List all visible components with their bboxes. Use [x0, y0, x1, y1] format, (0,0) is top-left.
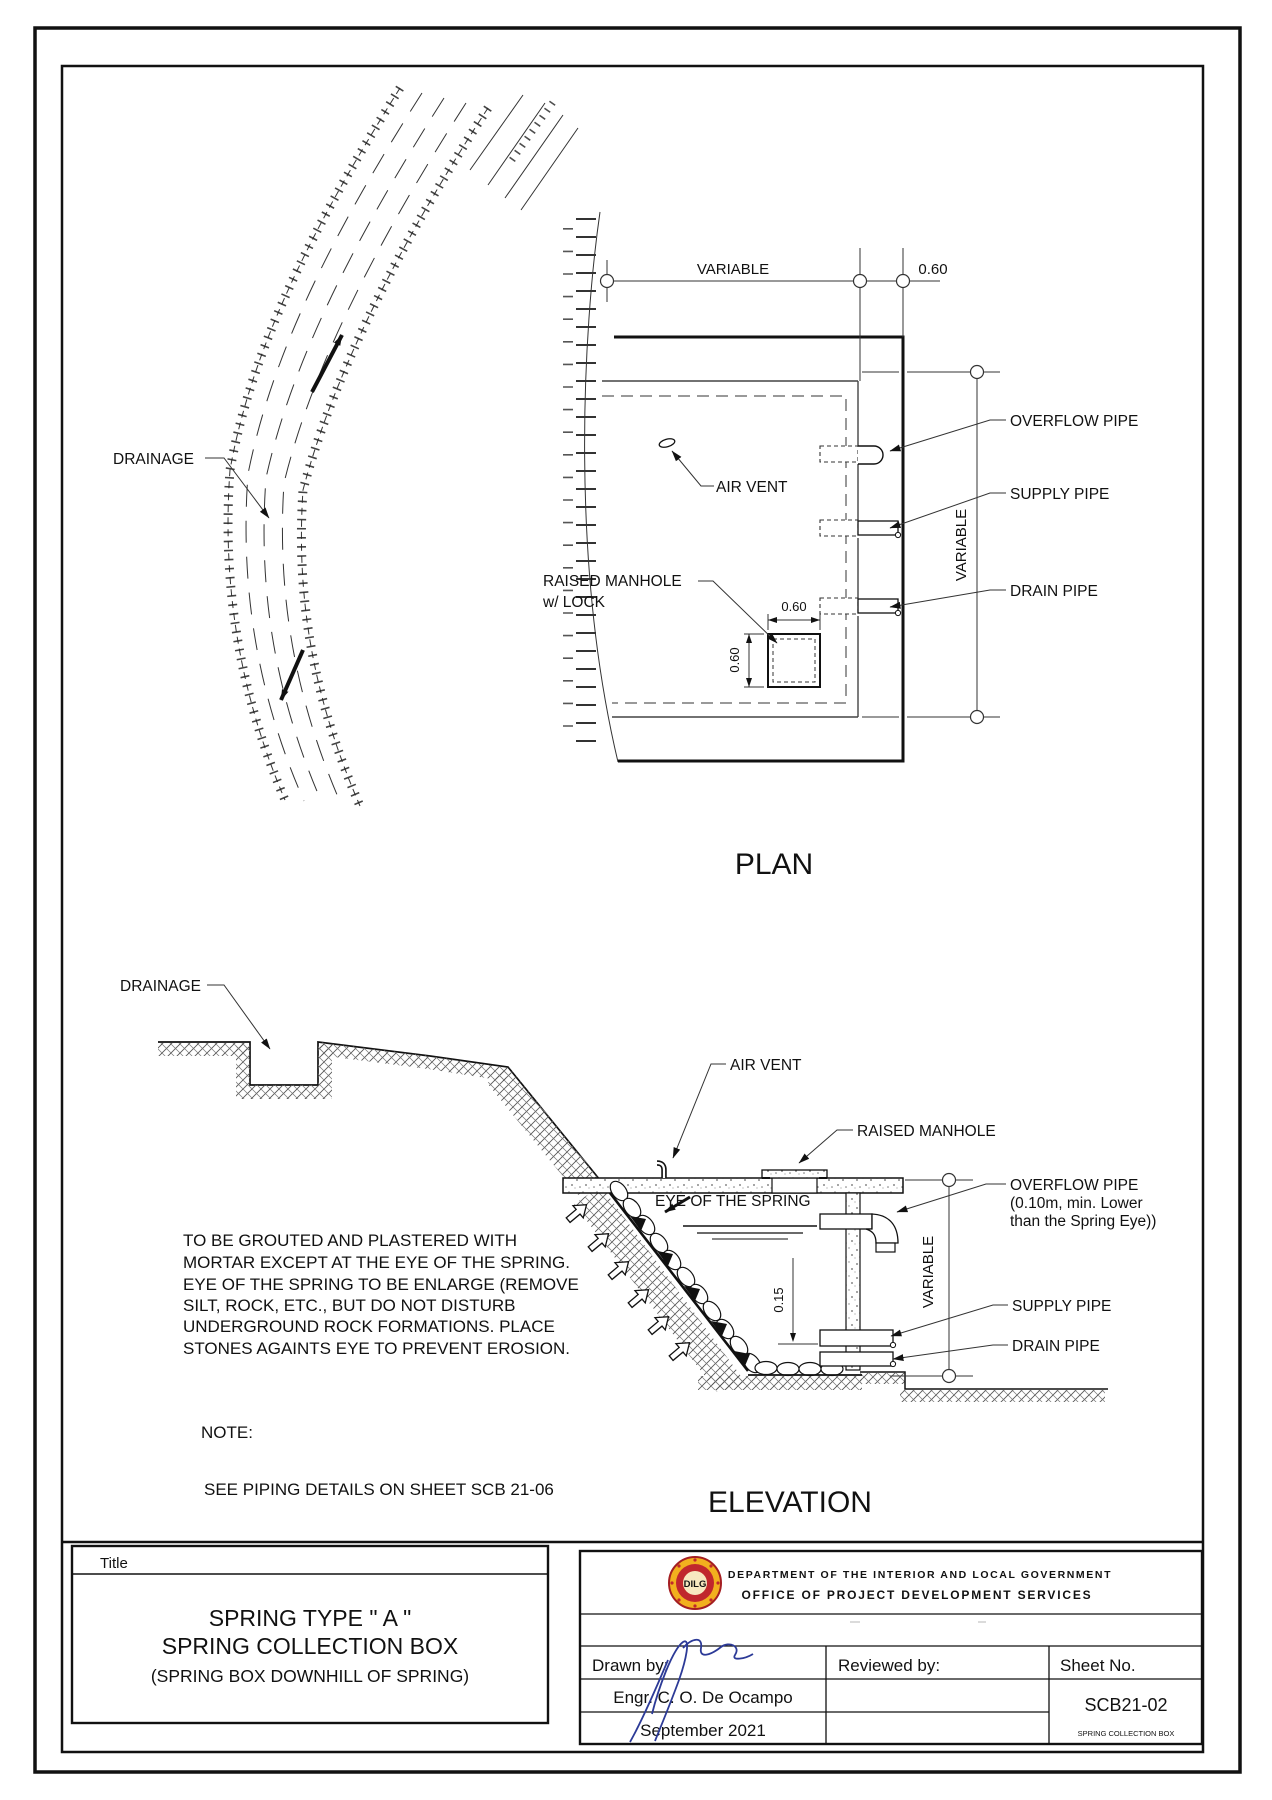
svg-text:SILT, ROCK, ETC., BUT DO NOT D: SILT, ROCK, ETC., BUT DO NOT DISTURB: [183, 1296, 516, 1315]
elev-air-vent-icon: [657, 1163, 664, 1178]
reviewed-by-label: Reviewed by:: [838, 1656, 940, 1675]
elevation-title: ELEVATION: [708, 1486, 872, 1519]
water-level: [683, 1226, 817, 1239]
flow-arrow-up-icon: [312, 335, 342, 392]
elev-supply-pipe: [820, 1330, 893, 1346]
elev-air-vent-label: AIR VENT: [730, 1057, 802, 1074]
note-text: SEE PIPING DETAILS ON SHEET SCB 21-06: [204, 1480, 554, 1499]
plan-drain-pipe: [858, 599, 898, 613]
plan-air-vent-label: AIR VENT: [716, 479, 788, 496]
svg-text:DILG: DILG: [684, 1579, 707, 1590]
drawing-title-line1: SPRING TYPE " A ": [209, 1605, 412, 1631]
technical-drawing: DRAINAGE VARIABLE 0.60: [0, 0, 1272, 1800]
plan-pipes: [820, 446, 901, 616]
elev-drainage-label: DRAINAGE: [120, 978, 201, 995]
plan-drainage-channel: [228, 88, 578, 806]
manhole-width-dim: 0.60: [781, 599, 806, 614]
plan-variable-right-dim: VARIABLE: [953, 509, 970, 581]
plan-manhole-label-2: w/ LOCK: [542, 594, 606, 611]
plan-manhole-label-1: RAISED MANHOLE: [543, 573, 682, 590]
title-block: Title SPRING TYPE " A " SPRING COLLECTIO…: [72, 1546, 1202, 1744]
drawn-by-name: Engr. C. O. De Ocampo: [613, 1688, 793, 1707]
plan-overflow-pipe: [858, 446, 883, 464]
dim-015: 0.15: [771, 1258, 818, 1344]
agency-line1: DEPARTMENT OF THE INTERIOR AND LOCAL GOV…: [728, 1569, 1112, 1581]
elev-overflow-label-2: (0.10m, min. Lower: [1010, 1195, 1143, 1212]
agency-line2: OFFICE OF PROJECT DEVELOPMENT SERVICES: [742, 1588, 1093, 1602]
svg-text:UNDERGROUND ROCK FORMATIONS.: UNDERGROUND ROCK FORMATIONS. PLACE: [183, 1317, 555, 1336]
drawn-by-label: Drawn by:: [592, 1656, 669, 1675]
elev-drain-pipe: [820, 1352, 893, 1366]
svg-text:0.15: 0.15: [771, 1287, 786, 1312]
dilg-logo-icon: DILG: [669, 1557, 721, 1609]
plan-060-top-dim: 0.60: [918, 261, 947, 278]
elev-overflow-label-3: than the Spring Eye)): [1010, 1213, 1156, 1230]
plan-supply-pipe: [858, 521, 898, 535]
svg-text:MORTAR EXCEPT AT THE EYE OF TH: MORTAR EXCEPT AT THE EYE OF THE SPRING.: [183, 1253, 570, 1272]
elev-manhole: [762, 1170, 827, 1193]
plan-manhole: 0.60 0.60: [727, 599, 820, 687]
sheet-subtitle: SPRING COLLECTION BOX: [1078, 1729, 1175, 1738]
svg-text:TO BE GROUTED AND PLASTERED WI: TO BE GROUTED AND PLASTERED WITH: [183, 1231, 517, 1250]
drawing-sheet: DRAINAGE VARIABLE 0.60: [0, 0, 1272, 1800]
plan-view: DRAINAGE VARIABLE 0.60: [113, 88, 1138, 881]
elevation-view: DRAINAGE AIR VENT RAISED MANHOLE EYE OF …: [120, 978, 1156, 1519]
drawing-title-line2: SPRING COLLECTION BOX: [162, 1633, 459, 1659]
eye-of-spring-label: EYE OF THE SPRING: [655, 1193, 811, 1210]
plan-rock-boundary: [568, 212, 618, 762]
flow-arrows: [563, 1199, 695, 1365]
plan-variable-top-dim: VARIABLE: [697, 261, 769, 278]
elev-supply-label: SUPPLY PIPE: [1012, 1298, 1111, 1315]
elev-overflow-label-1: OVERFLOW PIPE: [1010, 1177, 1138, 1194]
plan-air-vent-icon: [658, 437, 675, 449]
plan-supply-label: SUPPLY PIPE: [1010, 486, 1109, 503]
elev-manhole-label: RAISED MANHOLE: [857, 1123, 996, 1140]
plan-overflow-label: OVERFLOW PIPE: [1010, 413, 1138, 430]
plan-top-dimension: VARIABLE 0.60: [601, 248, 948, 381]
title-label: Title: [100, 1555, 128, 1572]
plan-box-walls: [602, 337, 903, 761]
elev-variable-dim: VARIABLE: [920, 1236, 937, 1308]
elev-drain-label: DRAIN PIPE: [1012, 1338, 1100, 1355]
plan-air-vent-leader: [672, 451, 714, 486]
plan-drainage-label: DRAINAGE: [113, 451, 194, 468]
sheet-no-label: Sheet No.: [1060, 1656, 1136, 1675]
drawing-title-line3: (SPRING BOX DOWNHILL OF SPRING): [151, 1666, 469, 1686]
svg-text:EYE OF THE SPRING TO BE ENLARG: EYE OF THE SPRING TO BE ENLARGE (REMOVE: [183, 1275, 579, 1294]
plan-drain-label: DRAIN PIPE: [1010, 583, 1098, 600]
notes-paragraph: TO BE GROUTED AND PLASTERED WITH MORTAR …: [183, 1231, 579, 1358]
sheet-border: [35, 28, 1240, 1772]
plan-title: PLAN: [735, 848, 813, 881]
elev-right-dimension: VARIABLE: [890, 1174, 973, 1383]
sheet-number: SCB21-02: [1084, 1695, 1167, 1715]
svg-text:STONES AGAINTS EYE TO PREVENT: STONES AGAINTS EYE TO PREVENT EROSION.: [183, 1339, 570, 1358]
note-heading: NOTE:: [201, 1423, 253, 1442]
manhole-height-dim: 0.60: [727, 647, 742, 672]
flow-arrow-down-icon: [281, 650, 303, 700]
plan-right-dimension: VARIABLE: [862, 366, 1000, 724]
plan-drainage-leader: [205, 458, 269, 518]
